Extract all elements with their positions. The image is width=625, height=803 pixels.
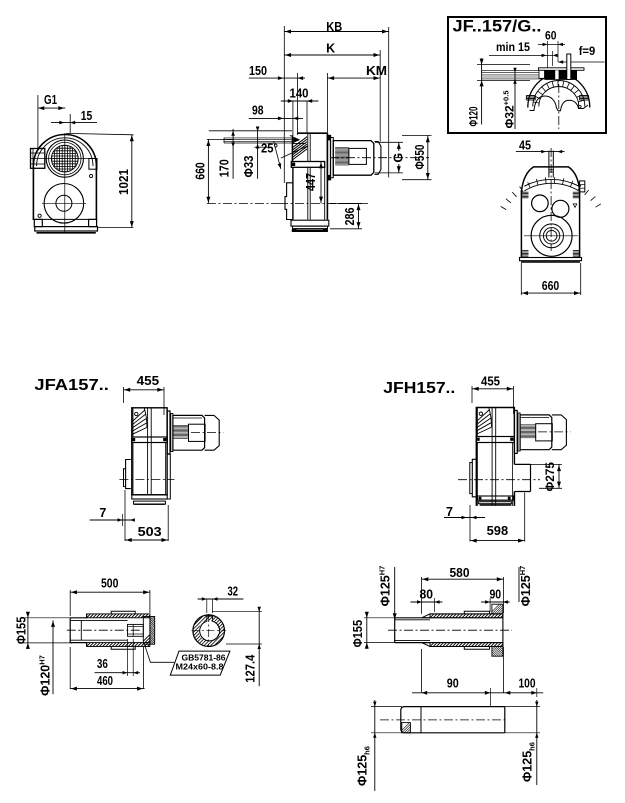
svg-text:460: 460 — [97, 674, 113, 688]
svg-text:127.4: 127.4 — [244, 655, 258, 683]
svg-text:G: G — [392, 153, 406, 163]
svg-text:K: K — [326, 42, 335, 56]
svg-text:447: 447 — [304, 173, 318, 191]
svg-text:M24x60-8.8: M24x60-8.8 — [176, 663, 225, 672]
svg-text:286: 286 — [343, 207, 357, 225]
svg-text:15: 15 — [81, 109, 93, 123]
svg-text:60: 60 — [545, 31, 557, 43]
svg-text:JFA157..: JFA157.. — [34, 377, 109, 394]
svg-text:Φ155: Φ155 — [14, 617, 28, 645]
svg-text:140: 140 — [290, 87, 309, 101]
svg-text:min 15: min 15 — [496, 42, 531, 54]
svg-text:1021: 1021 — [116, 169, 131, 195]
svg-text:Φ33: Φ33 — [242, 155, 256, 177]
svg-text:GB5781-86: GB5781-86 — [182, 653, 227, 662]
svg-text:580: 580 — [450, 566, 470, 580]
svg-text:JF..157/G..: JF..157/G.. — [453, 17, 542, 35]
svg-text:455: 455 — [481, 374, 500, 388]
svg-text:JFH157..: JFH157.. — [383, 380, 455, 397]
svg-text:80: 80 — [420, 588, 434, 602]
svg-text:170: 170 — [218, 159, 232, 177]
svg-text:100: 100 — [519, 676, 536, 690]
svg-text:Φ155: Φ155 — [351, 620, 365, 648]
svg-text:98: 98 — [252, 104, 264, 118]
svg-text:7: 7 — [446, 505, 453, 519]
svg-text:Φ275: Φ275 — [543, 462, 557, 492]
svg-text:90: 90 — [489, 588, 501, 602]
svg-text:503: 503 — [138, 525, 162, 539]
svg-text:36: 36 — [97, 657, 108, 671]
svg-text:500: 500 — [101, 576, 119, 590]
svg-text:G1: G1 — [44, 93, 57, 107]
svg-text:Φ120: Φ120 — [469, 107, 481, 127]
svg-text:90: 90 — [447, 676, 459, 690]
svg-text:45: 45 — [519, 139, 531, 153]
svg-text:660: 660 — [542, 279, 560, 293]
svg-text:598: 598 — [487, 524, 509, 538]
svg-text:150: 150 — [249, 64, 267, 78]
svg-text:f=9: f=9 — [579, 46, 596, 58]
svg-text:7: 7 — [99, 506, 106, 520]
svg-text:32: 32 — [228, 585, 239, 599]
svg-text:660: 660 — [193, 162, 207, 180]
svg-text:KM: KM — [366, 64, 387, 78]
svg-text:455: 455 — [137, 374, 160, 388]
svg-text:Φ550: Φ550 — [413, 144, 427, 169]
